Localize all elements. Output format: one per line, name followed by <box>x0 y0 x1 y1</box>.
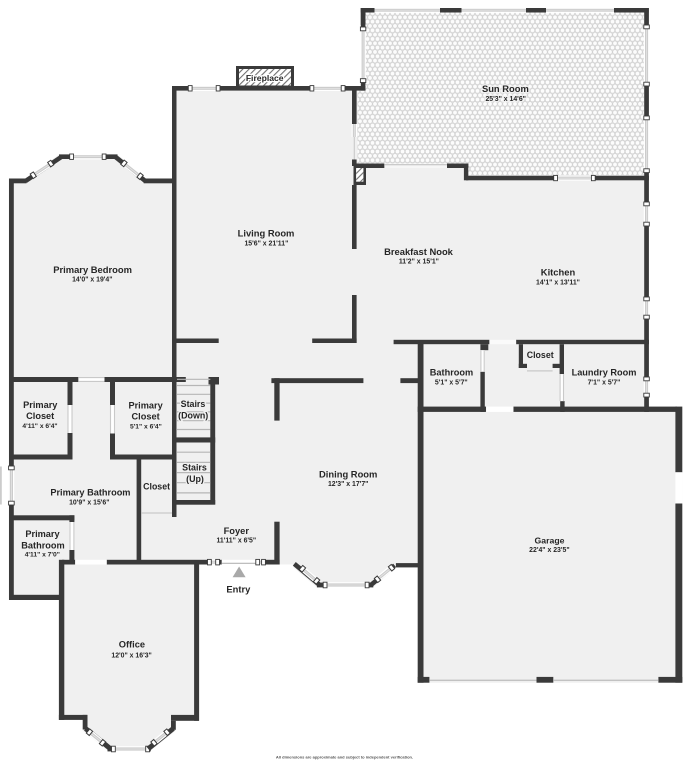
svg-text:7'1" x 5'7": 7'1" x 5'7" <box>588 380 621 387</box>
svg-text:(Up): (Up) <box>186 474 204 484</box>
svg-text:4'11" x 7'0": 4'11" x 7'0" <box>25 552 60 559</box>
svg-text:All dimensions are approximate: All dimensions are approximate and subje… <box>276 755 413 760</box>
svg-text:12'3" x 17'7": 12'3" x 17'7" <box>328 481 368 488</box>
svg-text:Primary Bedroom: Primary Bedroom <box>53 264 132 275</box>
svg-text:Primary Bathroom: Primary Bathroom <box>50 488 130 498</box>
svg-text:Kitchen: Kitchen <box>541 267 576 278</box>
svg-text:Dining Room: Dining Room <box>319 469 377 480</box>
svg-text:Bathroom: Bathroom <box>21 540 64 550</box>
svg-text:14'1" x 13'11": 14'1" x 13'11" <box>536 280 580 287</box>
svg-text:Bathroom: Bathroom <box>430 367 473 377</box>
svg-text:Primary: Primary <box>23 400 58 410</box>
svg-text:Office: Office <box>119 639 145 649</box>
svg-text:Stairs: Stairs <box>181 399 206 409</box>
svg-text:Foyer: Foyer <box>224 526 250 536</box>
svg-text:10'9" x 15'6": 10'9" x 15'6" <box>69 499 109 506</box>
svg-text:12'0" x 16'3": 12'0" x 16'3" <box>111 653 151 660</box>
svg-text:Garage: Garage <box>535 536 565 546</box>
svg-text:Laundry Room: Laundry Room <box>572 367 637 377</box>
svg-text:Closet: Closet <box>132 411 160 421</box>
svg-text:Stairs: Stairs <box>182 463 207 473</box>
svg-text:Closet: Closet <box>26 411 54 421</box>
svg-text:(Down): (Down) <box>178 410 208 420</box>
svg-text:4'11" x 6'4": 4'11" x 6'4" <box>22 423 57 430</box>
svg-text:15'6" x 21'11": 15'6" x 21'11" <box>244 240 288 247</box>
svg-text:22'4" x 23'5": 22'4" x 23'5" <box>529 547 569 554</box>
svg-text:Closet: Closet <box>527 350 554 360</box>
svg-text:5'1" x 5'7": 5'1" x 5'7" <box>435 380 468 387</box>
svg-text:Fireplace: Fireplace <box>246 73 284 83</box>
svg-text:Living Room: Living Room <box>238 228 295 239</box>
svg-text:25'3" x 14'6": 25'3" x 14'6" <box>485 96 525 103</box>
svg-text:14'0" x 19'4": 14'0" x 19'4" <box>72 277 112 284</box>
svg-text:5'1" x 6'4": 5'1" x 6'4" <box>130 423 162 430</box>
svg-text:Primary: Primary <box>25 529 60 539</box>
svg-text:Closet: Closet <box>143 482 170 492</box>
svg-text:11'11" x 6'5": 11'11" x 6'5" <box>216 537 256 544</box>
svg-text:Primary: Primary <box>128 401 163 411</box>
svg-text:Breakfast Nook: Breakfast Nook <box>384 246 454 257</box>
svg-text:11'2" x 15'1": 11'2" x 15'1" <box>399 259 439 266</box>
svg-text:Entry: Entry <box>226 583 251 594</box>
svg-text:Sun Room: Sun Room <box>482 83 529 94</box>
